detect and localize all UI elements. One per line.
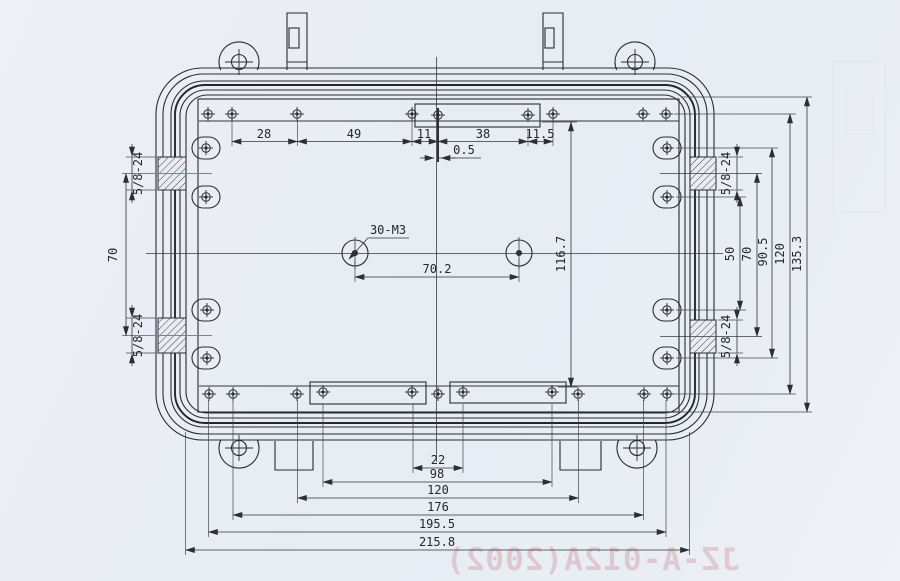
dim-label: 50	[723, 247, 737, 261]
enclosure-drawing-canvas: JZ-A-012A(2002)	[0, 0, 900, 581]
dim-label: 49	[347, 127, 361, 141]
enclosure-shell-outline	[156, 68, 714, 440]
scan-ghost-artifacts: JZ-A-012A(2002)	[445, 62, 885, 578]
hinge-tab-left	[287, 13, 307, 70]
hinge-tab-right	[543, 13, 563, 70]
scanned-engineering-drawing: JZ-A-012A(2002)	[0, 0, 900, 581]
dim-label: 28	[257, 127, 271, 141]
mounting-ear-top-left	[219, 42, 259, 75]
mounting-ear-top-right	[615, 42, 655, 75]
thread-label: 5/8-24	[719, 315, 733, 358]
dim-label: 120	[773, 243, 787, 265]
dim-label: 135.3	[790, 236, 804, 272]
dim-label: 38	[476, 127, 490, 141]
foot-right	[560, 441, 601, 470]
dim-label: 11	[417, 127, 431, 141]
dim-label: 90.5	[756, 238, 770, 267]
dim-label: 11.5	[526, 127, 555, 141]
dim-label: 22	[431, 453, 445, 467]
dim-label: 120	[427, 483, 449, 497]
dim-label: 70	[106, 248, 120, 262]
dim-label: 215.8	[419, 535, 455, 549]
dim-label: 0.5	[453, 143, 475, 157]
hole-callout: 30-M3	[370, 223, 406, 237]
dim-label: 98	[430, 467, 444, 481]
mirrored-watermark: JZ-A-012A(2002)	[445, 542, 740, 578]
dim-label: 176	[427, 500, 449, 514]
foot-left	[275, 441, 313, 470]
dim-label: 116.7	[554, 236, 568, 272]
dim-label: 70	[740, 247, 754, 261]
thread-label: 5/8-24	[719, 152, 733, 195]
thread-label: 5/8-24	[131, 314, 145, 357]
dim-label: 70.2	[423, 262, 452, 276]
threaded-ports	[158, 157, 716, 353]
dim-label: 195.5	[419, 517, 455, 531]
thread-label: 5/8-24	[131, 152, 145, 195]
